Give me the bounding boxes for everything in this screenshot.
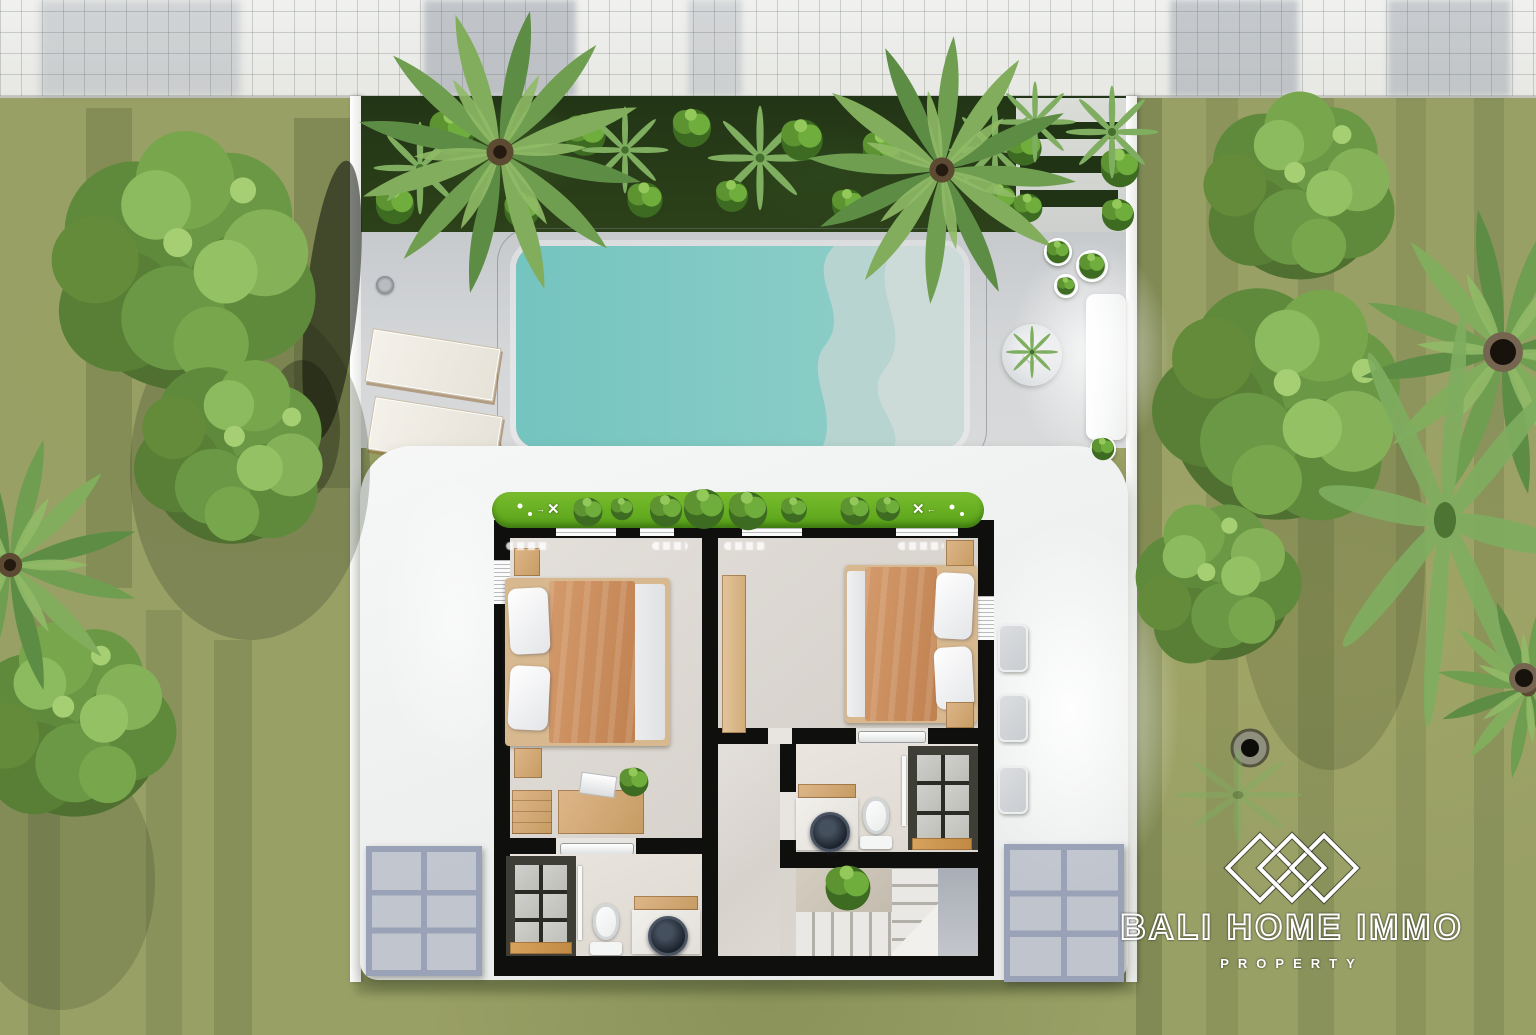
garden-bush — [1102, 199, 1134, 231]
desk-plant — [620, 768, 649, 797]
villa-floorplan-render: →✕ ✕← — [0, 0, 1536, 1035]
planter-bush — [841, 497, 870, 526]
garden-bush — [716, 180, 748, 212]
potted-plant-foliage — [1047, 241, 1069, 263]
grass-tuft — [1174, 749, 1302, 842]
mat-plant — [1006, 326, 1058, 378]
potted-plant-foliage — [1092, 438, 1114, 460]
garden-fern — [1066, 86, 1159, 179]
garden-bush — [781, 119, 823, 161]
watermark-logo: BALI HOME IMMO PROPERTY — [1110, 836, 1474, 971]
planter-bush — [650, 495, 682, 527]
tree — [1203, 92, 1394, 280]
tree — [52, 131, 316, 391]
planter-bush — [729, 492, 767, 530]
garden-bush — [627, 182, 662, 217]
palm-tree — [329, 0, 671, 323]
planter-bush — [684, 489, 724, 529]
brand-name: BALI HOME IMMO — [1120, 908, 1463, 948]
palm-tree — [763, 0, 1120, 349]
potted-plant-foliage — [1079, 253, 1105, 279]
planter-bush — [574, 498, 603, 527]
potted-plant-foliage — [1057, 277, 1075, 295]
stair-plant — [826, 866, 871, 911]
three-diamonds-icon — [1244, 836, 1340, 900]
planter-bush — [611, 498, 633, 520]
garden-bush — [673, 109, 711, 147]
brand-tagline: PROPERTY — [1220, 956, 1364, 971]
planter-bush — [876, 497, 900, 521]
planter-bush — [781, 497, 807, 523]
